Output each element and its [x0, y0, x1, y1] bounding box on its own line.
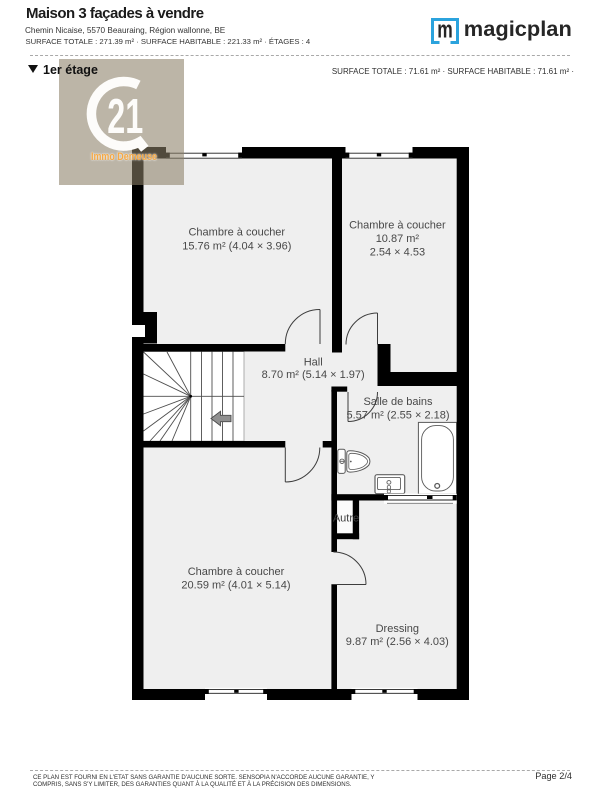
- svg-text:Dressing: Dressing: [376, 623, 419, 635]
- svg-text:Chambre à coucher: Chambre à coucher: [188, 566, 285, 578]
- svg-text:9.87 m² (2.56 × 4.03): 9.87 m² (2.56 × 4.03): [346, 636, 449, 648]
- svg-text:Chambre à coucher: Chambre à coucher: [349, 220, 446, 232]
- svg-text:Chambre à coucher: Chambre à coucher: [188, 227, 285, 239]
- svg-text:8.70 m² (5.14 × 1.97): 8.70 m² (5.14 × 1.97): [262, 369, 365, 381]
- svg-text:15.76 m² (4.04 × 3.96): 15.76 m² (4.04 × 3.96): [182, 241, 291, 253]
- svg-text:Autre: Autre: [333, 513, 359, 525]
- svg-text:21: 21: [107, 90, 143, 144]
- svg-text:Hall: Hall: [304, 357, 323, 369]
- svg-text:10.87 m²: 10.87 m²: [376, 233, 420, 245]
- svg-text:Immo Demeuse: Immo Demeuse: [91, 151, 157, 163]
- svg-text:20.59 m² (4.01 × 5.14): 20.59 m² (4.01 × 5.14): [181, 579, 290, 591]
- svg-text:5.57 m² (2.55 × 2.18): 5.57 m² (2.55 × 2.18): [346, 409, 449, 421]
- svg-text:2.54 × 4.53: 2.54 × 4.53: [370, 247, 425, 259]
